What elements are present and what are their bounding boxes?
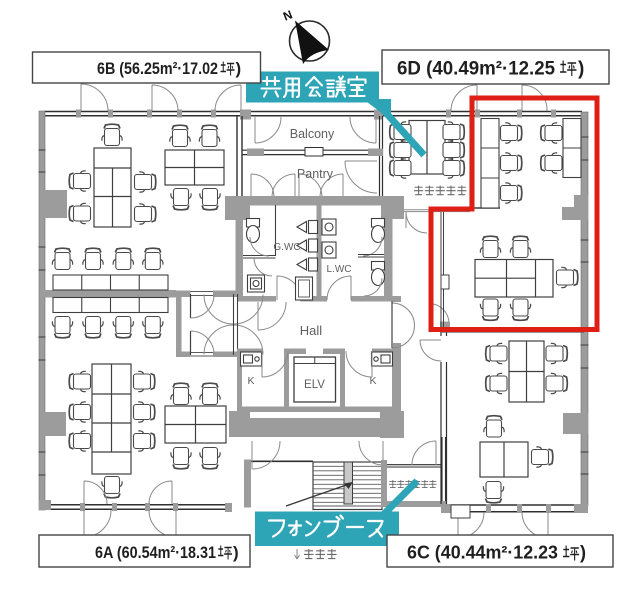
svg-text:K: K <box>247 375 254 387</box>
svg-text:6A (60.54m²·18.31: 6A (60.54m²·18.31 <box>95 543 216 562</box>
svg-text:): ) <box>580 543 586 563</box>
svg-text:Pantry: Pantry <box>297 167 334 181</box>
svg-text:G.WC: G.WC <box>273 242 300 253</box>
svg-text:6D (40.49m²·12.25: 6D (40.49m²·12.25 <box>397 59 555 80</box>
svg-text:6B (56.25m²·17.02: 6B (56.25m²·17.02 <box>97 59 218 78</box>
svg-text:Hall: Hall <box>300 323 323 338</box>
svg-text:): ) <box>236 59 242 78</box>
svg-text:): ) <box>578 59 584 80</box>
svg-text:ELV: ELV <box>304 379 325 391</box>
svg-text:L.WC: L.WC <box>327 264 352 275</box>
svg-text:Balcony: Balcony <box>290 127 335 141</box>
svg-text:): ) <box>233 543 239 562</box>
svg-text:K: K <box>369 375 376 387</box>
svg-text:6C (40.44m²·12.23: 6C (40.44m²·12.23 <box>407 543 558 563</box>
